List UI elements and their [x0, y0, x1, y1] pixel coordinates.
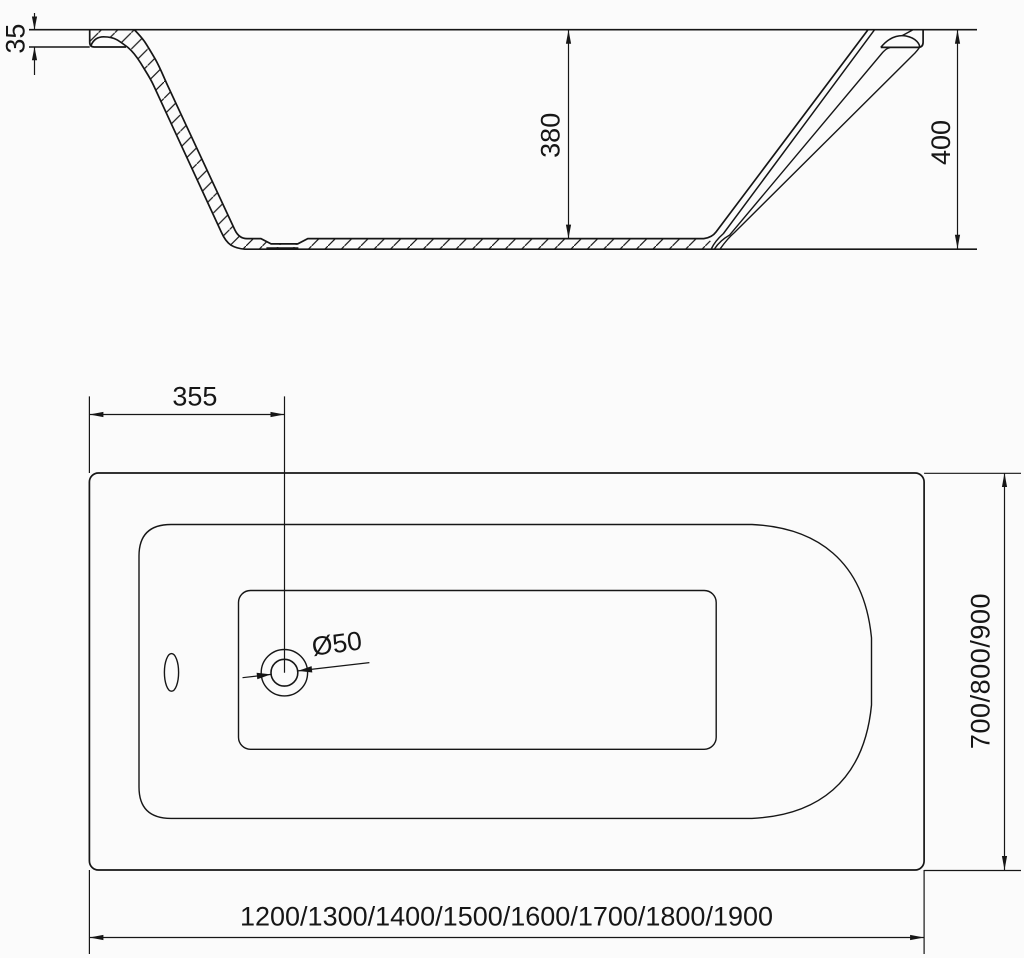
svg-text:355: 355	[172, 382, 217, 412]
svg-text:35: 35	[1, 24, 31, 54]
svg-text:700/800/900: 700/800/900	[966, 593, 996, 749]
svg-text:380: 380	[536, 113, 566, 158]
svg-text:1200/1300/1400/1500/1600/1700/: 1200/1300/1400/1500/1600/1700/1800/1900	[240, 902, 773, 932]
svg-text:400: 400	[926, 120, 956, 165]
svg-text:Ø50: Ø50	[310, 625, 364, 661]
